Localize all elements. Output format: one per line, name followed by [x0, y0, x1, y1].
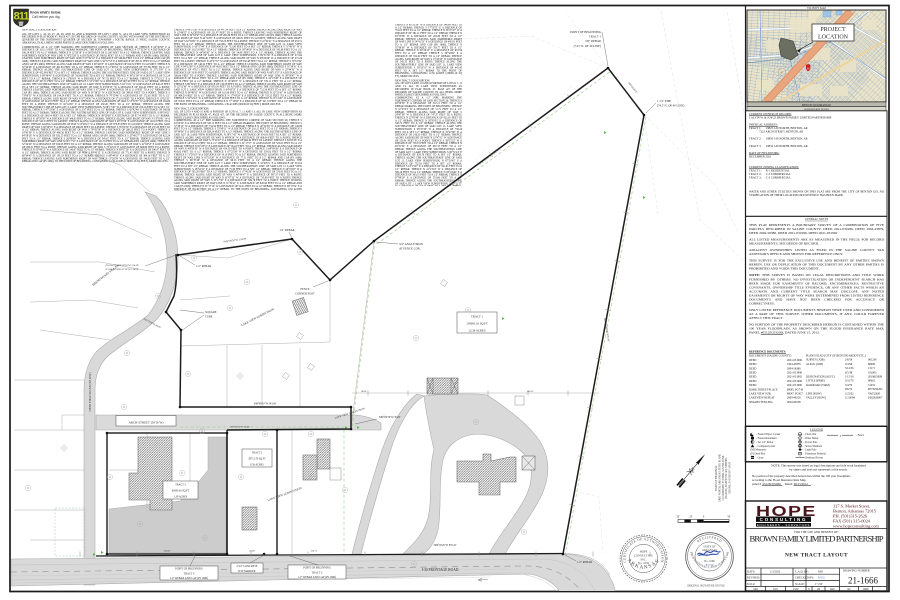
- svg-text:165.00': 165.00': [164, 551, 171, 553]
- svg-text:1.39 ACRES: 1.39 ACRES: [174, 496, 188, 499]
- svg-text:C.A.D. BY:: C.A.D. BY:: [795, 570, 809, 574]
- svg-text:BROWN FAMILY LIMITED PARTNERSH: BROWN FAMILY LIMITED PARTNERSHIP: [750, 534, 884, 544]
- svg-text:(74.5' N. OF 40 LINE): (74.5' N. OF 40 LINE): [574, 44, 601, 48]
- svg-text:50': 50': [676, 516, 680, 519]
- svg-text:1/2" REBAR AND CAP (PS 1666): 1/2" REBAR AND CAP (PS 1666): [170, 577, 208, 580]
- svg-text:- Found Object Corner: - Found Object Corner: [756, 433, 781, 436]
- svg-text:Know what's below.: Know what's below.: [30, 11, 61, 15]
- svg-text:GENERAL NOTES: GENERAL NOTES: [805, 217, 829, 221]
- svg-text:50': 50': [727, 516, 731, 519]
- svg-text:LAKE VIEW SUBDIVISION: LAKE VIEW SUBDIVISION: [240, 307, 275, 327]
- svg-text:CHECKED BY:: CHECKED BY:: [795, 576, 814, 580]
- svg-text:- Water Meter: - Water Meter: [804, 437, 819, 440]
- svg-text:1/2" REBAR AND CAP (PS 1666): 1/2" REBAR AND CAP (PS 1666): [298, 576, 336, 579]
- svg-text:50.00': 50.00': [249, 551, 255, 553]
- svg-text:MD: MD: [818, 570, 823, 574]
- svg-text:1/3/2022: 1/3/2022: [770, 570, 781, 574]
- svg-text:TRACT 3: TRACT 3: [175, 484, 186, 487]
- svg-text:TUBE: TUBE: [205, 314, 213, 318]
- svg-text:28712.79 SQ FT: 28712.79 SQ FT: [248, 458, 266, 461]
- svg-text:S40°05'00"E: S40°05'00"E: [627, 81, 638, 94]
- svg-text:1"=50': 1"=50': [815, 582, 823, 586]
- svg-text:(N)150.70' N89°09'50"W 134.09': (N)150.70' N89°09'50"W 134.09': [105, 264, 139, 267]
- svg-text:- Power Pole: - Power Pole: [804, 441, 819, 444]
- svg-text:TRACT 3: TRACT 3: [184, 572, 195, 575]
- svg-text:3/4" ANGLE IRON: 3/4" ANGLE IRON: [399, 242, 424, 246]
- svg-text:CORNER POST: CORNER POST: [295, 292, 315, 296]
- svg-text:500: 500: [753, 587, 758, 591]
- svg-text:POINT OF BEGINNING: POINT OF BEGINNING: [303, 567, 331, 570]
- svg-text:ARCH STREET (50' R/W): ARCH STREET (50' R/W): [129, 421, 164, 425]
- svg-text:POINT OF BEGINNING: POINT OF BEGINNING: [175, 568, 203, 571]
- svg-text:N89°02'20"W 876.10': N89°02'20"W 876.10': [434, 544, 457, 547]
- svg-text:N50°01'10"E 1352.09': N50°01'10"E 1352.09': [479, 148, 501, 166]
- svg-text:15W: 15W: [793, 587, 799, 591]
- svg-text:I-30 FRONTAGE ROAD: I-30 FRONTAGE ROAD: [422, 568, 459, 572]
- svg-text:N89°09'50"W 50.00': N89°09'50"W 50.00': [230, 425, 250, 428]
- svg-text:26: 26: [817, 587, 821, 591]
- svg-text:- Light Pole: - Light Pole: [804, 449, 818, 452]
- svg-text:811: 811: [14, 11, 30, 23]
- svg-text:1/2" REBAR: 1/2" REBAR: [279, 228, 294, 232]
- svg-text:60430.63 SQ FT: 60430.63 SQ FT: [172, 490, 190, 493]
- svg-text:88.00': 88.00': [361, 391, 367, 393]
- svg-text:No. 1050: No. 1050: [638, 561, 650, 565]
- svg-text:ENGINEERS - SURVEYORS: ENGINEERS - SURVEYORS: [757, 523, 810, 527]
- svg-text:PROJECT: PROJECT: [820, 27, 846, 33]
- svg-text:LOCATION: LOCATION: [818, 35, 849, 41]
- svg-text:3/7/22: 3/7/22: [706, 563, 714, 567]
- svg-text:- Telephone Pedestal: - Telephone Pedestal: [804, 453, 827, 456]
- svg-text:1/2" REBAR: 1/2" REBAR: [577, 560, 592, 564]
- svg-text:LAKE VIEW SUBDIVISION: LAKE VIEW SUBDIVISION: [267, 486, 303, 502]
- svg-text:1 1/2" PIPE: 1 1/2" PIPE: [657, 99, 671, 103]
- svg-text:REVISED:: REVISED:: [747, 576, 760, 580]
- svg-text:N89°09'50"W 30.00': N89°09'50"W 30.00': [379, 416, 401, 419]
- svg-text:- Set 1/2" Rebar: - Set 1/2" Rebar: [756, 441, 773, 444]
- svg-text:- Clean Out: - Clean Out: [804, 433, 817, 436]
- svg-text:FENCE: FENCE: [300, 287, 309, 291]
- svg-text:N89°09'50"W 134.09': N89°09'50"W 134.09': [223, 237, 247, 243]
- svg-text:1/2" REBAR: 1/2" REBAR: [196, 264, 211, 268]
- svg-text:- Fence: - Fence: [856, 434, 865, 437]
- svg-text:ATIONS, SOLVED BY OPUS: ATIONS, SOLVED BY OPUS: [729, 461, 732, 494]
- svg-text:TRACT 1: TRACT 1: [589, 35, 602, 39]
- svg-text:CONSULTING: CONSULTING: [760, 517, 808, 522]
- svg-text:0.56 ACRES: 0.56 ACRES: [250, 464, 264, 467]
- svg-text:NEW TRACT LAYOUT: NEW TRACT LAYOUT: [785, 553, 848, 559]
- svg-text:0: 0: [703, 516, 705, 519]
- svg-text:TRACT 2: TRACT 2: [252, 452, 263, 455]
- svg-text:DRAWING NUMBER: DRAWING NUMBER: [843, 569, 870, 573]
- svg-text:- Overhead Power: - Overhead Power: [804, 456, 824, 459]
- svg-text:Call before you dig.: Call before you dig.: [32, 15, 60, 19]
- svg-text:2"x2" CONCRETE: 2"x2" CONCRETE: [236, 565, 257, 568]
- svg-text:620: 620: [830, 587, 835, 591]
- svg-text:62: 62: [848, 587, 852, 591]
- svg-text:TRACT 2: TRACT 2: [312, 571, 323, 574]
- svg-text:AT FENCE COR.: AT FENCE COR.: [399, 247, 421, 251]
- svg-text:(74.5' N. OF 40 LINE): (74.5' N. OF 40 LINE): [657, 104, 684, 108]
- svg-text:- Computed point: - Computed point: [756, 445, 775, 448]
- svg-text:ORIGINAL SIGNATURE ON FILE: ORIGINAL SIGNATURE ON FILE: [687, 585, 725, 588]
- svg-text:- Found monument: - Found monument: [756, 437, 777, 440]
- svg-text:www.hopeconsulting.com: www.hopeconsulting.com: [833, 524, 879, 529]
- svg-text:- Sewer Manhole: - Sewer Manhole: [804, 445, 823, 448]
- svg-text:x: x: [840, 434, 842, 437]
- svg-text:WCG: WCG: [818, 576, 825, 580]
- svg-text:S89°09'50"W 543.06': S89°09'50"W 543.06': [254, 403, 277, 406]
- svg-text:5/8" REBAR: 5/8" REBAR: [585, 39, 601, 43]
- svg-text:12.36 ACRES: 12.36 ACRES: [468, 329, 485, 333]
- svg-text:SQUARE: SQUARE: [205, 310, 217, 314]
- svg-text:x: x: [799, 456, 801, 459]
- svg-text:139081.16 SQ FT: 139081.16 SQ FT: [466, 322, 488, 326]
- svg-text:1666: 1666: [863, 587, 870, 591]
- svg-text:DATE:: DATE:: [747, 570, 755, 574]
- svg-text:25': 25': [689, 516, 693, 519]
- svg-text:TRACT 1: TRACT 1: [471, 315, 484, 319]
- svg-text:R/W MARKER: R/W MARKER: [238, 570, 255, 573]
- svg-text:330.71': 330.71': [311, 551, 318, 553]
- svg-text:DEER FIELD ROAD (50' R/W): DEER FIELD ROAD (50' R/W): [88, 372, 92, 411]
- svg-text:(M) Measured: (M) Measured: [751, 449, 767, 452]
- svg-text:POINT OF BEGINNING: POINT OF BEGINNING: [570, 30, 602, 34]
- svg-text:STATE OF: STATE OF: [703, 546, 716, 549]
- svg-text:- Grate: - Grate: [756, 456, 764, 459]
- svg-text:W.O.#:: W.O.#:: [747, 582, 755, 586]
- svg-text:(P) Deed/Plat: (P) Deed/Plat: [751, 453, 766, 456]
- svg-text:01S: 01S: [773, 587, 778, 591]
- svg-text:SCALE:: SCALE:: [795, 582, 805, 586]
- svg-text:21-1666: 21-1666: [848, 576, 878, 586]
- svg-text:141.00': 141.00': [527, 391, 534, 393]
